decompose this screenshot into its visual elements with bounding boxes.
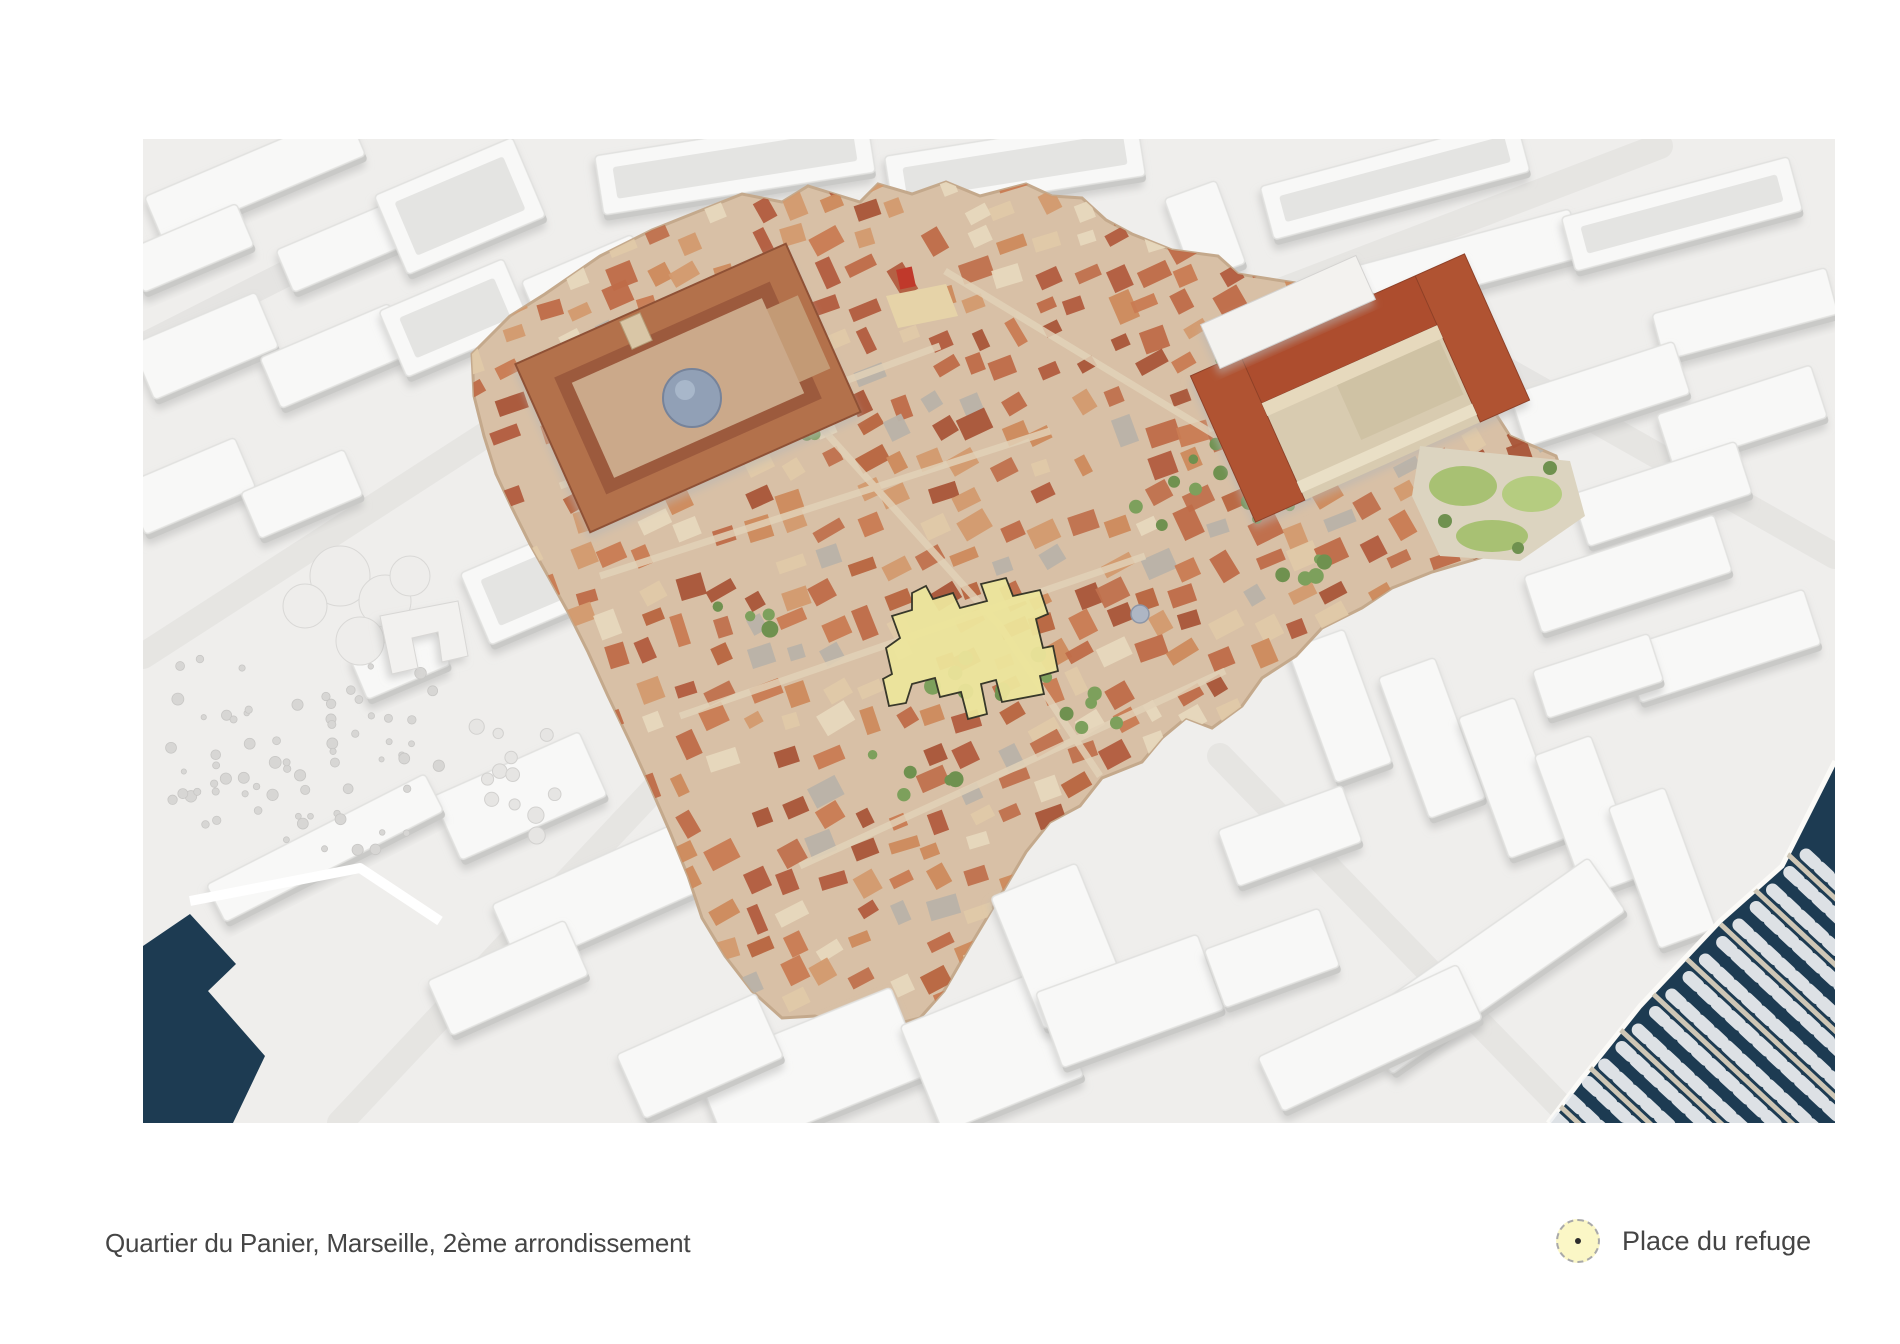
place-du-refuge-marker-icon [1556,1219,1600,1263]
charite-chapel-dome [663,369,721,427]
legend: Place du refuge [1556,1219,1811,1263]
aerial-view-panier [143,139,1835,1123]
aerial-map-figure [143,139,1835,1123]
map-caption: Quartier du Panier, Marseille, 2ème arro… [105,1220,690,1266]
church-dome [1131,605,1149,623]
marker-center-dot [1575,1238,1581,1244]
legend-label: Place du refuge [1622,1219,1811,1263]
dome-highlight [675,380,695,400]
page: { "caption": { "text": "Quartier du Pani… [0,0,1900,1344]
